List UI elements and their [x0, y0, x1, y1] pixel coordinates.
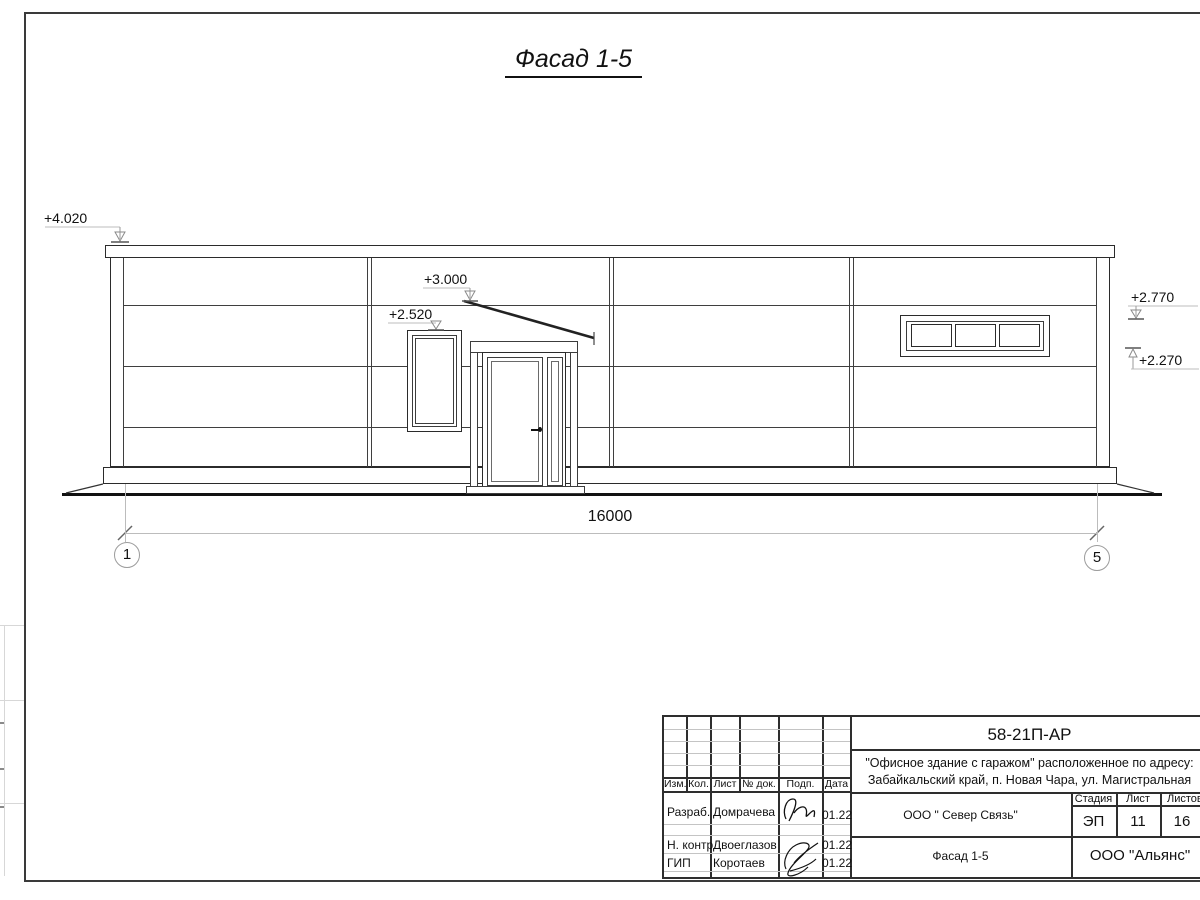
- panel-joint: [849, 258, 854, 467]
- tb-col-podp: Подп.: [779, 778, 822, 790]
- tb-rule: [664, 753, 850, 754]
- title-block: Изм. Кол. Лист № док. Подп. Дата Разраб.…: [662, 715, 1200, 879]
- tb-role-gip: ГИП: [667, 856, 691, 870]
- tb-doc-code: 58-21П-АР: [850, 725, 1200, 745]
- window-ribbon: [900, 315, 1050, 357]
- tb-project-line2: Забайкальский край, п. Новая Чара, ул. М…: [850, 773, 1200, 787]
- window-ribbon-pane: [911, 324, 952, 347]
- window-left: [407, 330, 462, 432]
- tb-date-nkontr: 01.22: [822, 838, 850, 852]
- tb-col-list: Лист: [711, 778, 739, 790]
- window-left-frame: [412, 335, 457, 427]
- dimension-line: [125, 533, 1097, 534]
- elevation-label-ribbon-top: +2.770: [1131, 289, 1174, 305]
- window-ribbon-pane: [955, 324, 996, 347]
- signature-razrab: [780, 793, 822, 827]
- tb-role-nkontr: Н. контр.: [667, 838, 717, 852]
- tb-project-line1: "Офисное здание с гаражом" расположенное…: [850, 756, 1200, 770]
- door-leaf-panel: [491, 361, 539, 482]
- elevation-label-ribbon-bottom: +2.270: [1139, 352, 1182, 368]
- tb-col-kol: Кол.: [687, 778, 710, 790]
- entrance-step: [466, 486, 585, 494]
- tb-rule: [664, 824, 850, 825]
- window-ribbon-pane: [999, 324, 1040, 347]
- elevation-label-canopy: +3.000: [424, 271, 467, 287]
- panel-joint: [367, 258, 372, 467]
- tb-col-data: Дата: [823, 778, 850, 790]
- drawing-sheet: { "sheet": { "title": "Фасад 1-5" }, "dr…: [0, 0, 1200, 900]
- door-side-glass: [551, 361, 559, 482]
- tb-stage-label: Стадия: [1071, 793, 1116, 805]
- margin-line: [4, 625, 5, 876]
- tb-rule: [850, 836, 1200, 838]
- tb-sheets-value: 16: [1160, 813, 1200, 830]
- tb-role-razrab: Разраб.: [667, 805, 710, 819]
- tb-col-izm: Изм.: [664, 778, 686, 790]
- dimension-value: 16000: [560, 508, 660, 526]
- tb-date-gip: 01.22: [822, 856, 850, 870]
- window-left-glass: [415, 338, 454, 424]
- ground-line: [62, 493, 1162, 496]
- door-leaf: [487, 357, 543, 486]
- door-side-panel: [547, 357, 563, 486]
- door-handle-icon: [538, 427, 542, 432]
- pilaster-left: [123, 258, 124, 467]
- tb-rule: [664, 765, 850, 766]
- extension-line-axis5: [1097, 484, 1098, 542]
- tb-date-razrab: 01.22: [822, 808, 850, 822]
- pilaster-right: [1096, 258, 1097, 467]
- tb-company: ООО "Альянс": [1071, 847, 1200, 864]
- porch-post-left: [470, 352, 478, 490]
- tb-sheet-value: 11: [1116, 813, 1160, 830]
- tb-client: ООО " Север Связь": [850, 808, 1071, 822]
- tb-rule: [1071, 805, 1200, 807]
- margin-stamp-fragment: [0, 722, 4, 724]
- tb-rule: [850, 749, 1200, 751]
- tb-rule: [664, 729, 850, 730]
- panel-joint: [609, 258, 614, 467]
- tb-sheets-label: Листов: [1167, 793, 1200, 805]
- margin-stamp-fragment: [0, 768, 4, 770]
- drawing-title: Фасад 1-5: [505, 45, 642, 78]
- tb-stage-value: ЭП: [1071, 813, 1116, 830]
- tb-rule: [664, 791, 850, 793]
- tb-col-ndoc: № док.: [740, 778, 778, 790]
- tb-name-razrab: Домрачева: [713, 805, 775, 819]
- facade-plinth: [103, 467, 1117, 484]
- tb-sheet-name: Фасад 1-5: [850, 849, 1071, 863]
- signature-gip: [778, 835, 824, 879]
- margin-stamp-fragment: [0, 806, 4, 808]
- tb-name-gip: Коротаев: [713, 856, 765, 870]
- tb-rule: [664, 741, 850, 742]
- elevation-label-parapet: +4.020: [44, 210, 87, 226]
- tb-name-nkontr: Двоеглазов: [713, 838, 777, 852]
- tb-sheet-label: Лист: [1116, 793, 1160, 805]
- elevation-label-window: +2.520: [389, 306, 432, 322]
- axis-bubble-1: 1: [114, 542, 140, 568]
- axis-bubble-5: 5: [1084, 545, 1110, 571]
- porch-post-right: [570, 352, 578, 490]
